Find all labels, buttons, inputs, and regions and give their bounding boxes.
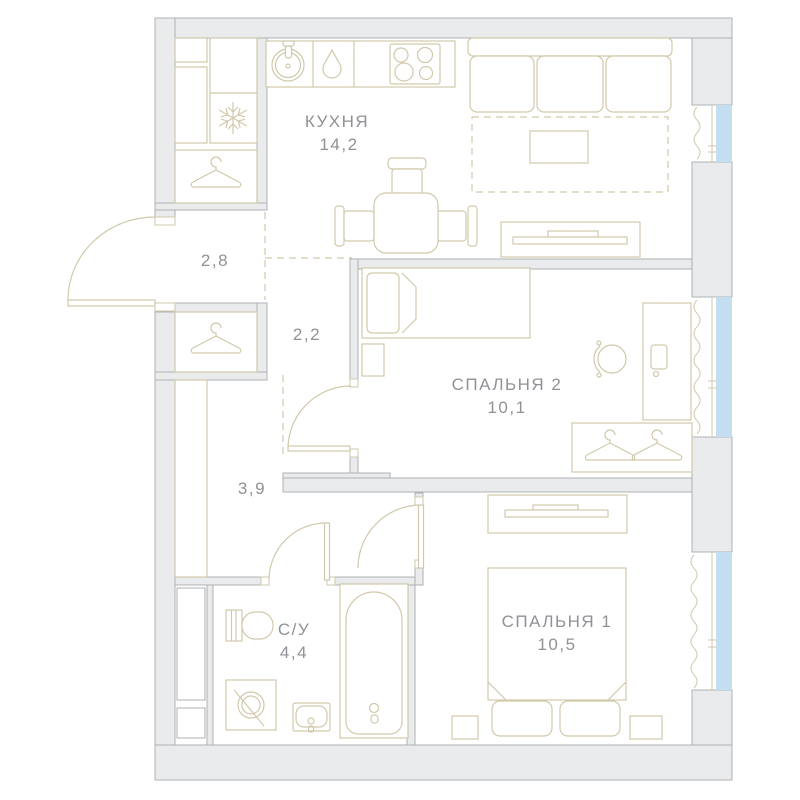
room-area-corridor2: 3,9 bbox=[238, 479, 266, 498]
pillow bbox=[560, 701, 620, 736]
washing-machine-icon bbox=[226, 680, 276, 730]
room-area-hallway: 2,8 bbox=[201, 251, 229, 270]
room-area-corridor: 2,2 bbox=[293, 325, 321, 344]
door-bedroom1 bbox=[358, 497, 424, 568]
bathtub-icon bbox=[340, 584, 408, 738]
desk bbox=[643, 303, 691, 420]
door-bathroom bbox=[261, 523, 335, 585]
nightstand bbox=[362, 344, 384, 376]
curtain-icon bbox=[694, 300, 700, 434]
pillow bbox=[492, 701, 552, 736]
room-area-bedroom1: 10,5 bbox=[537, 635, 576, 654]
room-label-bedroom2: СПАЛЬНЯ 2 bbox=[452, 375, 563, 394]
dining-table bbox=[374, 193, 438, 253]
wardrobe-bedroom2 bbox=[572, 423, 692, 472]
coffee-table bbox=[530, 131, 588, 163]
sofa bbox=[468, 38, 672, 112]
room-area-bathroom: 4,4 bbox=[280, 643, 308, 662]
kitchen-cabinets bbox=[175, 38, 257, 143]
room-label-bathroom: С/У bbox=[278, 620, 310, 639]
nightstand bbox=[452, 716, 478, 739]
curtain-icon bbox=[694, 107, 700, 159]
hall-closet-bottom bbox=[175, 312, 257, 372]
washbasin-icon bbox=[293, 703, 330, 732]
desk-chair bbox=[594, 341, 626, 377]
room-area-bedroom2: 10,1 bbox=[487, 398, 526, 417]
nightstand bbox=[630, 716, 662, 739]
hall-closet-top bbox=[175, 150, 257, 203]
floor-plan-svg: КУХНЯ 14,2 СПАЛЬНЯ 2 10,1 СПАЛЬНЯ 1 10,5… bbox=[0, 0, 800, 800]
window-kitchen bbox=[694, 105, 732, 162]
window-bedroom2 bbox=[694, 297, 732, 437]
tv-stand-kitchen bbox=[501, 222, 640, 257]
entrance-door bbox=[68, 217, 175, 311]
service-shafts bbox=[177, 588, 205, 738]
corridor-wardrobe bbox=[175, 380, 207, 577]
tv-stand-bedroom1 bbox=[488, 495, 627, 533]
curtain-icon bbox=[691, 555, 697, 688]
room-area-kitchen: 14,2 bbox=[319, 135, 358, 154]
single-bed bbox=[362, 268, 530, 376]
door-bedroom2 bbox=[288, 379, 358, 457]
room-label-kitchen: КУХНЯ bbox=[305, 112, 369, 131]
window-bedroom1 bbox=[691, 552, 732, 690]
room-label-bedroom1: СПАЛЬНЯ 1 bbox=[502, 612, 613, 631]
toilet-icon bbox=[226, 610, 273, 641]
dining-table-chairs bbox=[335, 158, 477, 253]
floor-plan: КУХНЯ 14,2 СПАЛЬНЯ 2 10,1 СПАЛЬНЯ 1 10,5… bbox=[0, 0, 800, 800]
